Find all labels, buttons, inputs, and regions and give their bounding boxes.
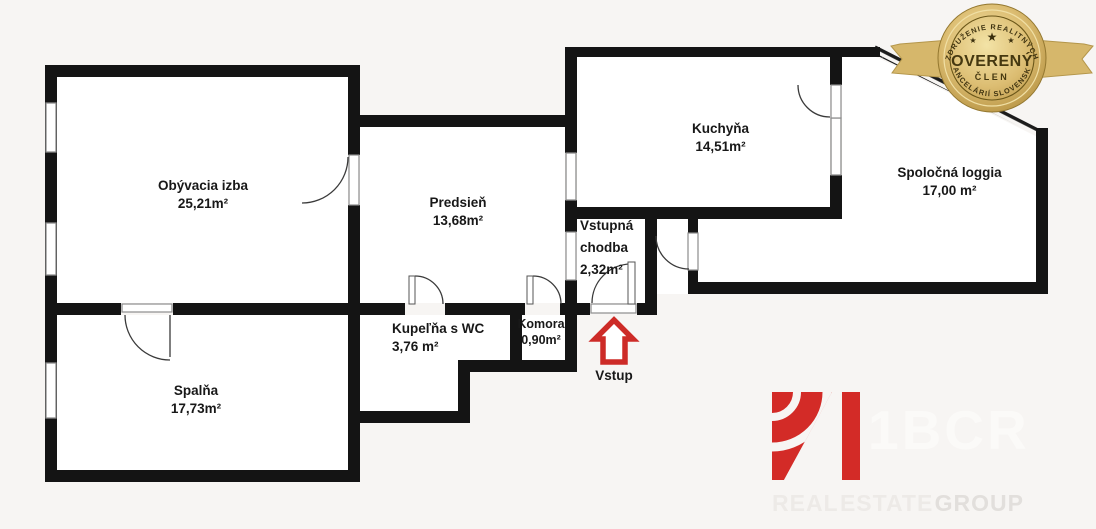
room-area: 0,90m² <box>511 332 571 348</box>
window <box>831 118 841 175</box>
label-kuchyna: Kuchyňa 14,51m² <box>648 120 793 156</box>
star-icon: ★ <box>987 30 998 44</box>
room-name: Predsieň <box>429 195 486 210</box>
star-icon: ★ <box>1007 36 1014 45</box>
door-leaf <box>566 232 576 280</box>
room-name: Komora <box>517 317 564 331</box>
entrance-arrow-icon <box>595 320 633 362</box>
room-area: 25,21m² <box>108 195 298 213</box>
room-area: 14,51m² <box>648 138 793 156</box>
door-leaf <box>688 233 698 270</box>
logo-mark-bar <box>842 392 860 480</box>
entrance-label: Vstup <box>595 368 633 383</box>
label-loggia: Spoločná loggia 17,00 m² <box>852 164 1047 200</box>
logo-brand-text: 1BCR <box>868 398 1030 462</box>
room-area: 17,00 m² <box>852 182 1047 200</box>
star-icon: ★ <box>969 36 976 45</box>
entrance-threshold <box>591 304 636 313</box>
logo-words: REAL ESTATE GROUP <box>772 490 1024 517</box>
logo-word-estate: ESTATE <box>840 490 933 517</box>
door-leaf <box>831 85 841 118</box>
door-leaf <box>349 155 359 205</box>
door-leaf <box>527 276 533 304</box>
room-name: Vstupná <box>580 218 633 233</box>
room-name: Kuchyňa <box>692 121 749 136</box>
room-name: chodba <box>580 240 628 255</box>
room-name: Kupeľňa s WC <box>392 321 484 336</box>
room-area: 17,73m² <box>101 400 291 418</box>
room-name: Obývacia izba <box>158 178 248 193</box>
floorplan-page: ZDRUŽENIE REALITNÝCH KANCELÁRIÍ SLOVENSK… <box>0 0 1096 529</box>
room-name: Spoločná loggia <box>897 165 1001 180</box>
label-obyvacia-izba: Obývacia izba 25,21m² <box>108 177 298 213</box>
window <box>566 153 576 200</box>
logo-word-real: REAL <box>772 490 839 517</box>
vestibule-floor <box>657 219 688 294</box>
window <box>46 103 56 152</box>
badge-subtitle: ČLEN <box>975 71 1010 82</box>
label-komora: Komora 0,90m² <box>511 316 571 348</box>
room-area: 2,32m² <box>580 262 623 277</box>
label-vstupna-chodba: Vstupná chodba 2,32m² <box>580 215 650 281</box>
label-predsien: Predsieň 13,68m² <box>383 194 533 230</box>
room-area: 13,68m² <box>383 212 533 230</box>
label-kupelna: Kupeľňa s WC 3,76 m² <box>392 320 522 356</box>
room-name: Spalňa <box>174 383 218 398</box>
window <box>46 363 56 418</box>
logo-mark <box>772 392 860 480</box>
badge-title: OVERENÝ <box>951 51 1033 70</box>
door-leaf <box>122 304 172 312</box>
door-leaf <box>409 276 415 304</box>
label-spalna: Spalňa 17,73m² <box>101 382 291 418</box>
room-area: 3,76 m² <box>392 338 522 356</box>
label-vstup: Vstup <box>584 367 644 385</box>
window <box>46 223 56 275</box>
logo-word-group: GROUP <box>935 490 1024 517</box>
